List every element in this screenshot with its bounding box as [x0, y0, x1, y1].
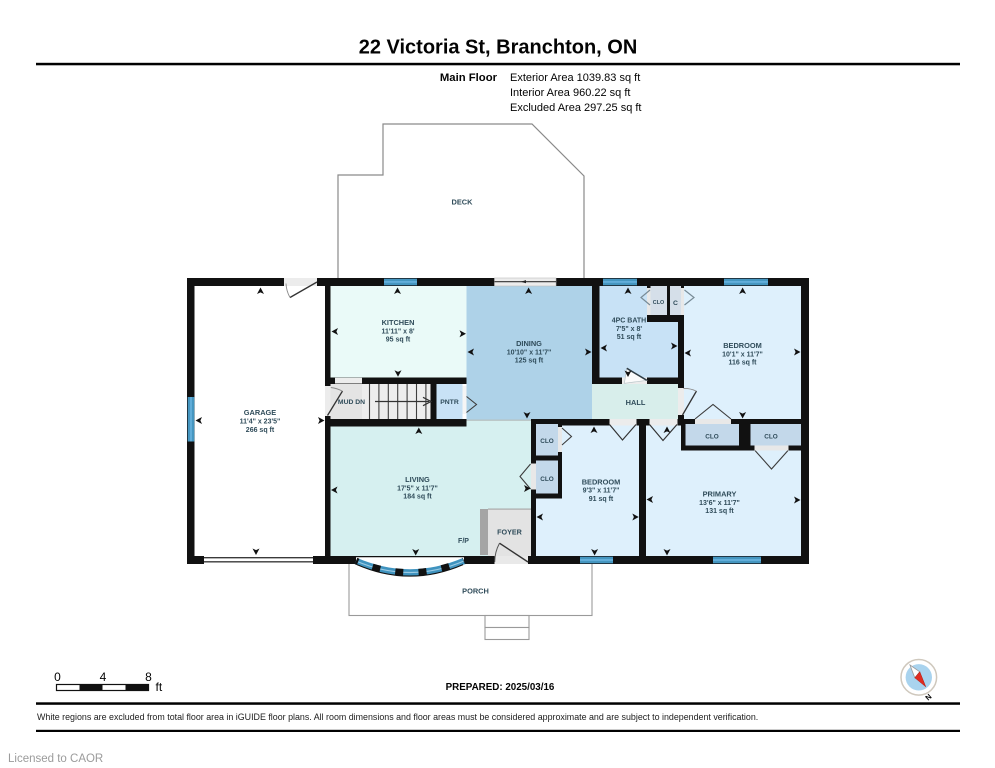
svg-text:CLO: CLO	[540, 438, 554, 445]
svg-text:10'10" x 11'7": 10'10" x 11'7"	[507, 349, 552, 356]
svg-text:266 sq ft: 266 sq ft	[246, 427, 275, 434]
svg-text:F/P: F/P	[458, 538, 469, 545]
svg-text:13'6" x 11'7": 13'6" x 11'7"	[699, 500, 740, 507]
svg-text:PORCH: PORCH	[462, 587, 489, 596]
svg-text:0: 0	[54, 670, 61, 684]
svg-text:Exterior Area 1039.83 sq ft: Exterior Area 1039.83 sq ft	[510, 72, 640, 84]
svg-text:22 Victoria St, Branchton, ON: 22 Victoria St, Branchton, ON	[359, 37, 638, 59]
svg-text:11'4" x 23'5": 11'4" x 23'5"	[240, 419, 281, 426]
svg-text:Licensed to CAOR: Licensed to CAOR	[8, 753, 103, 765]
svg-text:GARAGE: GARAGE	[244, 408, 277, 417]
svg-text:51 sq ft: 51 sq ft	[617, 334, 642, 341]
svg-text:9'3" x 11'7": 9'3" x 11'7"	[583, 488, 620, 495]
svg-text:BEDROOM: BEDROOM	[723, 341, 762, 350]
svg-text:7'5" x 8': 7'5" x 8'	[616, 326, 642, 333]
svg-text:CLO: CLO	[705, 434, 719, 441]
svg-text:MUD DN: MUD DN	[338, 399, 365, 406]
svg-text:KITCHEN: KITCHEN	[382, 318, 415, 327]
svg-text:PREPARED: 2025/03/16: PREPARED: 2025/03/16	[446, 682, 555, 693]
svg-text:DECK: DECK	[452, 198, 474, 207]
svg-text:Interior Area 960.22 sq ft: Interior Area 960.22 sq ft	[510, 87, 630, 99]
svg-text:8: 8	[145, 670, 152, 684]
svg-text:125 sq ft: 125 sq ft	[515, 358, 544, 365]
svg-text:FOYER: FOYER	[497, 528, 523, 537]
svg-text:4PC BATH: 4PC BATH	[612, 318, 646, 325]
svg-text:Excluded Area 297.25 sq ft: Excluded Area 297.25 sq ft	[510, 102, 641, 114]
svg-text:131 sq ft: 131 sq ft	[705, 508, 734, 515]
svg-text:DINING: DINING	[516, 339, 542, 348]
svg-text:10'1" x 11'7": 10'1" x 11'7"	[722, 351, 763, 358]
svg-text:17'5" x 11'7": 17'5" x 11'7"	[397, 485, 438, 492]
svg-text:184 sq ft: 184 sq ft	[403, 494, 432, 501]
svg-text:95 sq ft: 95 sq ft	[386, 337, 411, 344]
svg-text:Main Floor: Main Floor	[440, 72, 498, 84]
svg-text:CLO: CLO	[540, 476, 554, 483]
svg-text:PNTR: PNTR	[440, 399, 459, 406]
svg-text:LIVING: LIVING	[405, 475, 430, 484]
svg-text:11'11" x 8': 11'11" x 8'	[381, 328, 414, 335]
svg-text:C: C	[673, 300, 678, 307]
svg-text:BEDROOM: BEDROOM	[582, 477, 621, 486]
svg-text:HALL: HALL	[626, 398, 646, 407]
svg-text:N: N	[923, 692, 933, 702]
svg-text:4: 4	[100, 670, 107, 684]
svg-text:PRIMARY: PRIMARY	[703, 490, 737, 499]
svg-text:CLO: CLO	[653, 300, 664, 306]
svg-text:CLO: CLO	[764, 434, 778, 441]
svg-text:91 sq ft: 91 sq ft	[589, 496, 614, 503]
svg-text:116 sq ft: 116 sq ft	[728, 360, 757, 367]
svg-text:White regions are excluded fro: White regions are excluded from total fl…	[37, 712, 758, 722]
svg-text:ft: ft	[156, 680, 163, 694]
